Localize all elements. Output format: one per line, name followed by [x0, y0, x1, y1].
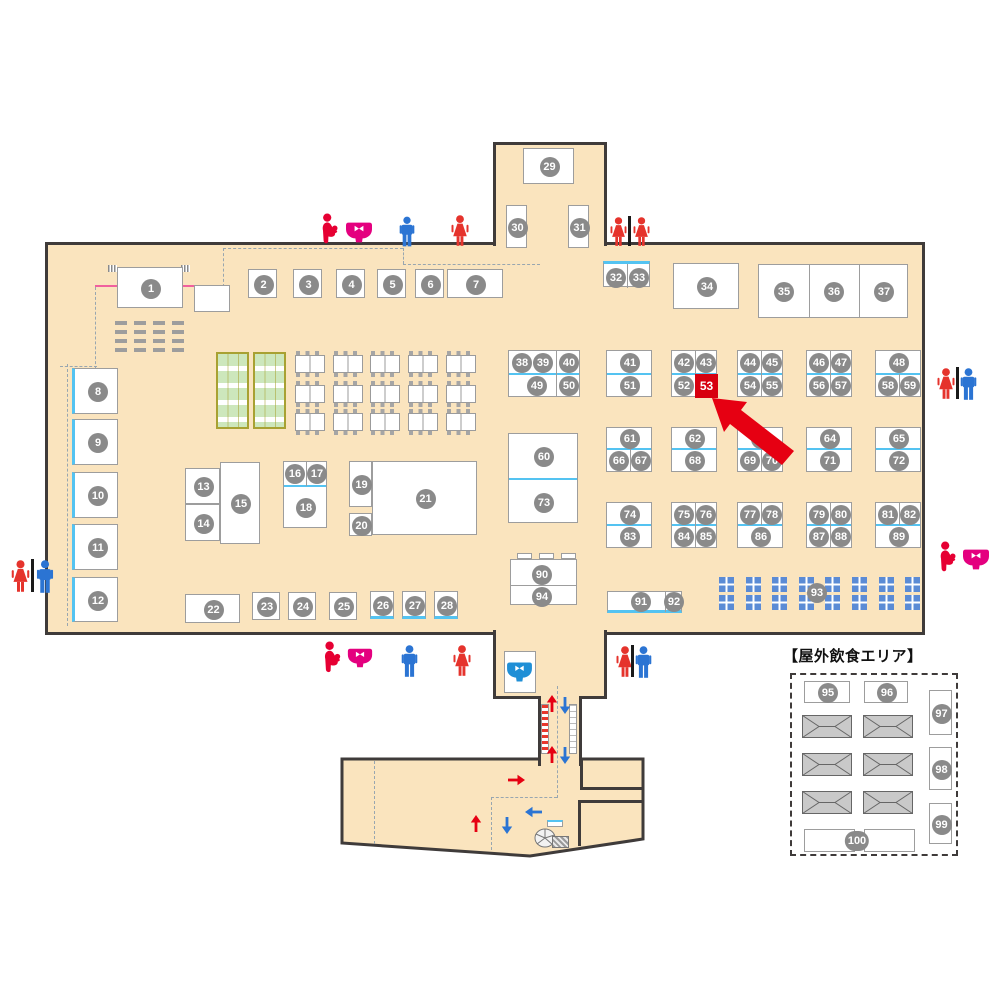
booth-number-20: 20: [352, 516, 372, 536]
booth-23[interactable]: 23: [252, 592, 280, 620]
booth-number-90: 90: [532, 565, 552, 585]
men-toilet-icon: [36, 560, 54, 593]
green-table-block: [216, 352, 249, 429]
nursing-mother-icon: [320, 213, 342, 249]
blue-table-tile: [905, 577, 920, 592]
vent-hatch: [108, 265, 117, 272]
blue-table-tile: [719, 577, 734, 592]
booth-number-74: 74: [620, 505, 640, 525]
divider-line: [627, 264, 628, 288]
diaper-icon-pink: [346, 647, 374, 669]
seat-dash: [172, 321, 184, 325]
booth-81-82-89[interactable]: 818289: [875, 502, 921, 548]
booth-number-65: 65: [889, 429, 909, 449]
booth-number-57: 57: [831, 376, 851, 396]
booth-number-36: 36: [824, 282, 844, 302]
divider-line: [556, 351, 557, 396]
booth-8[interactable]: 8: [72, 368, 118, 414]
wall-segment: [580, 759, 583, 790]
men-toilet-icon: [401, 645, 418, 677]
booth-number-34: 34: [697, 277, 717, 297]
booth-number-11: 11: [88, 538, 108, 558]
divider-line: [607, 373, 651, 375]
wall-segment: [578, 800, 643, 803]
booth-24[interactable]: 24: [288, 592, 316, 620]
booth-30[interactable]: 30: [506, 205, 527, 248]
dining-table-group: [408, 355, 438, 373]
seat-dash: [115, 348, 127, 352]
booth-5[interactable]: 5: [377, 269, 406, 298]
nursing-mother-icon: [322, 641, 345, 678]
booth-number-31: 31: [570, 218, 590, 238]
seat-dash: [172, 348, 184, 352]
highlight-arrow: [700, 390, 810, 480]
booth-number-85: 85: [696, 527, 716, 547]
diaper-icon-pink: [961, 548, 991, 571]
booth-75-76-84-85[interactable]: 75768485: [671, 502, 717, 548]
blue-table-tile: [746, 595, 761, 610]
divider-line: [509, 478, 577, 480]
women-toilet-icon: [450, 215, 470, 247]
booth-number-67: 67: [631, 451, 651, 471]
booth-number-37: 37: [874, 282, 894, 302]
booth-91-92[interactable]: 9192: [607, 591, 682, 613]
booth-60-73[interactable]: 6073: [508, 433, 578, 523]
outdoor-booth-100-right[interactable]: [864, 829, 915, 852]
booth-number-46: 46: [809, 353, 829, 373]
booth-number-8: 8: [88, 382, 108, 402]
booth-number-12: 12: [88, 591, 108, 611]
booth-65-72[interactable]: 6572: [875, 427, 921, 472]
booth-64-71[interactable]: 6471: [806, 427, 852, 472]
booth-number-94: 94: [532, 587, 552, 607]
booth-number-64: 64: [820, 429, 840, 449]
blue-table-tile: [905, 595, 920, 610]
booth-6[interactable]: 6: [415, 269, 444, 298]
dining-table-group: [446, 413, 476, 431]
tent: [802, 791, 852, 814]
booth-79-80-87-88[interactable]: 79808788: [806, 502, 852, 548]
booth-number-21: 21: [416, 489, 436, 509]
seat-dash: [115, 321, 127, 325]
booth-48-58-59[interactable]: 485859: [875, 350, 921, 397]
booth-number-51: 51: [620, 376, 640, 396]
booth-16-17-18[interactable]: 161718: [283, 461, 327, 528]
booth-number-82: 82: [900, 505, 920, 525]
booth-number-43: 43: [696, 353, 716, 373]
hatched-area: [552, 836, 569, 848]
nursing-mother-icon: [938, 541, 960, 577]
booth-number-35: 35: [774, 282, 794, 302]
divider-bar: [31, 559, 34, 592]
booth-number-89: 89: [889, 527, 909, 547]
seat-dash: [172, 339, 184, 343]
vent-tab: [561, 553, 576, 559]
seat-dash: [153, 330, 165, 334]
booth-number-59: 59: [900, 376, 920, 396]
booth-4[interactable]: 4: [336, 269, 365, 298]
booth-number-22: 22: [204, 600, 224, 620]
booth-number-56: 56: [809, 376, 829, 396]
booth-1[interactable]: 1: [117, 267, 183, 308]
partition-dashed: [403, 248, 404, 264]
area-number-100: 100: [845, 831, 869, 851]
booth-number-16: 16: [285, 464, 305, 484]
booth-61-66-67[interactable]: 616667: [606, 427, 652, 472]
booth-number-14: 14: [194, 514, 214, 534]
booth-20[interactable]: 20: [349, 513, 372, 536]
vent-tab: [539, 553, 554, 559]
up-arrow: [546, 695, 558, 713]
booth-9[interactable]: 9: [72, 419, 118, 465]
booth-number-38: 38: [512, 353, 532, 373]
booth-number-9: 9: [88, 433, 108, 453]
booth-number-80: 80: [831, 505, 851, 525]
booth-number-50: 50: [559, 376, 579, 396]
blue-table-tile: [746, 577, 761, 592]
booth-number-23: 23: [257, 597, 277, 617]
wall-segment: [493, 696, 541, 699]
blue-table-tile: [772, 595, 787, 610]
booth-number-45: 45: [762, 353, 782, 373]
down-arrow: [501, 816, 513, 834]
booth-number-52: 52: [674, 376, 694, 396]
booth-number-92: 92: [664, 592, 684, 612]
women-toilet-icon: [452, 645, 472, 677]
counter-box: [547, 820, 563, 827]
booth-number-18: 18: [296, 498, 316, 518]
booth-number-13: 13: [194, 477, 214, 497]
booth-28[interactable]: 28: [434, 591, 458, 619]
seat-dash: [115, 330, 127, 334]
booth-number-48: 48: [889, 353, 909, 373]
route-dashed: [491, 797, 492, 850]
booth-number-96: 96: [877, 683, 897, 703]
diaper-icon-blue: [505, 661, 534, 683]
dining-table-group: [408, 413, 438, 431]
dining-table-group: [370, 413, 400, 431]
tent: [802, 715, 852, 738]
partition-dashed: [403, 264, 540, 265]
booth-number-77: 77: [740, 505, 760, 525]
women-toilet-icon: [936, 368, 956, 400]
booth-22[interactable]: 22: [185, 594, 240, 623]
women-toilet-icon: [632, 217, 651, 247]
partition-dashed: [223, 248, 403, 249]
tent: [802, 753, 852, 776]
booth-number-32: 32: [606, 268, 626, 288]
booth-number-76: 76: [696, 505, 716, 525]
women-toilet-icon: [609, 217, 628, 247]
booth-74-83[interactable]: 7483: [606, 502, 652, 548]
dining-table-group: [295, 385, 325, 403]
booth-number-95: 95: [818, 683, 838, 703]
men-toilet-icon: [635, 646, 652, 678]
tent: [863, 753, 913, 776]
booth-number-39: 39: [533, 353, 553, 373]
booth-number-24: 24: [293, 597, 313, 617]
tent: [863, 715, 913, 738]
booth-98[interactable]: 98: [929, 747, 952, 790]
dining-table-group: [370, 355, 400, 373]
booth-25[interactable]: 25: [329, 592, 357, 620]
booth-number-40: 40: [559, 353, 579, 373]
booth-number-4: 4: [342, 275, 362, 295]
booth-38-39-40-49-50[interactable]: 3839404950: [508, 350, 580, 397]
booth-29[interactable]: 29: [523, 148, 574, 184]
booth-number-15: 15: [231, 494, 251, 514]
booth-46-47-56-57[interactable]: 46475657: [806, 350, 852, 397]
route-dashed: [491, 797, 557, 798]
booth-13[interactable]: 13: [185, 468, 220, 504]
booth-number-75: 75: [674, 505, 694, 525]
booth-12[interactable]: 12: [72, 577, 118, 622]
seat-dash: [153, 339, 165, 343]
divider-line: [738, 373, 782, 375]
divider-line: [807, 373, 851, 375]
booth-number-3: 3: [299, 275, 319, 295]
blue-table-tile: [879, 595, 894, 610]
blue-table-tile: [772, 577, 787, 592]
booth-number-58: 58: [878, 376, 898, 396]
booth-number-19: 19: [352, 475, 372, 495]
booth-27[interactable]: 27: [402, 591, 426, 619]
booth-number-44: 44: [740, 353, 760, 373]
booth-number-41: 41: [620, 353, 640, 373]
booth-26[interactable]: 26: [370, 591, 394, 619]
booth-number-26: 26: [373, 596, 393, 616]
divider-bar: [956, 367, 959, 399]
booth-21[interactable]: 21: [372, 461, 477, 535]
booth-number-81: 81: [878, 505, 898, 525]
booth-number-78: 78: [762, 505, 782, 525]
route-dashed: [374, 761, 375, 844]
booth-number-49: 49: [527, 376, 547, 396]
booth-99[interactable]: 99: [929, 803, 952, 844]
vent-tab: [517, 553, 532, 559]
booth-number-42: 42: [674, 353, 694, 373]
wall-segment: [580, 787, 643, 790]
divider-line: [509, 373, 579, 375]
booth-number-97: 97: [932, 704, 952, 724]
booth-77-78-86[interactable]: 777886: [737, 502, 783, 548]
booth-number-33: 33: [629, 268, 649, 288]
down-arrow: [559, 746, 571, 764]
booth-number-73: 73: [534, 493, 554, 513]
booth-3[interactable]: 3: [293, 269, 322, 298]
area-number-93: 93: [807, 583, 827, 603]
booth-number-72: 72: [889, 451, 909, 471]
booth-number-66: 66: [609, 451, 629, 471]
booth-10[interactable]: 10: [72, 472, 118, 518]
blue-table-tile: [825, 595, 840, 610]
booth-97[interactable]: 97: [929, 690, 952, 735]
booth-number-6: 6: [421, 275, 441, 295]
booth-number-84: 84: [674, 527, 694, 547]
seat-dash: [153, 348, 165, 352]
dining-table-group: [333, 355, 363, 373]
right-arrow: [510, 771, 522, 789]
partition-dashed: [223, 248, 224, 287]
blue-table-tile: [852, 595, 867, 610]
booth-number-98: 98: [932, 760, 952, 780]
dining-table-group: [295, 413, 325, 431]
booth-number-47: 47: [831, 353, 851, 373]
up-arrow: [546, 746, 558, 764]
divider-line: [511, 585, 576, 586]
seat-dash: [134, 348, 146, 352]
dining-table-group: [295, 355, 325, 373]
booth-number-10: 10: [88, 486, 108, 506]
booth-number-87: 87: [809, 527, 829, 547]
booth-number-60: 60: [534, 447, 554, 467]
booth-2[interactable]: 2: [248, 269, 277, 298]
dining-table-group: [333, 385, 363, 403]
booth-number-25: 25: [334, 597, 354, 617]
booth-number-7: 7: [466, 275, 486, 295]
outdoor-area-title: 【屋外飲食エリア】: [783, 645, 923, 666]
blue-table-tile: [825, 577, 840, 592]
booth-31[interactable]: 31: [568, 205, 589, 248]
diaper-icon-pink: [344, 221, 374, 244]
left-arrow: [528, 803, 540, 821]
divider-bar: [631, 645, 634, 677]
seat-dash: [134, 339, 146, 343]
wall-segment: [578, 800, 581, 846]
partition-dashed: [60, 366, 97, 367]
booth-7[interactable]: 7: [447, 269, 503, 298]
booth-number-17: 17: [307, 464, 327, 484]
booth-number-2: 2: [254, 275, 274, 295]
booth-number-1: 1: [141, 279, 161, 299]
booth-number-29: 29: [540, 157, 560, 177]
seat-dash: [134, 321, 146, 325]
divider-line: [876, 373, 920, 375]
booth-number-99: 99: [932, 815, 952, 835]
booth-number-30: 30: [508, 218, 528, 238]
seat-dash: [172, 330, 184, 334]
down-arrow: [559, 696, 571, 714]
booth-number-83: 83: [620, 527, 640, 547]
booth-32-33[interactable]: 3233: [603, 261, 650, 287]
booth-41-51[interactable]: 4151: [606, 350, 652, 397]
dining-table-group: [408, 385, 438, 403]
booth-number-28: 28: [437, 596, 457, 616]
booth-34[interactable]: 34: [673, 263, 739, 309]
divider-line: [809, 265, 810, 317]
booth-15[interactable]: 15: [220, 462, 260, 544]
dining-table-group: [333, 413, 363, 431]
men-toilet-icon: [960, 368, 977, 400]
men-toilet-icon: [399, 216, 415, 247]
blue-table-tile: [719, 595, 734, 610]
dining-table-group: [370, 385, 400, 403]
booth-number-5: 5: [383, 275, 403, 295]
tent: [863, 791, 913, 814]
booth-19[interactable]: 19: [349, 461, 372, 507]
blue-table-tile: [852, 577, 867, 592]
divider-line: [859, 265, 860, 317]
partition-dashed: [67, 364, 68, 626]
divider-line: [284, 485, 326, 487]
seat-dash: [134, 330, 146, 334]
blue-table-tile: [879, 577, 894, 592]
booth-11[interactable]: 11: [72, 524, 118, 570]
divider-bar: [628, 216, 631, 246]
service-line: [95, 285, 118, 287]
green-table-block: [253, 352, 286, 429]
south-lobby: [340, 756, 648, 860]
booth-number-79: 79: [809, 505, 829, 525]
seat-dash: [115, 339, 127, 343]
dining-table-group: [446, 385, 476, 403]
booth-number-91: 91: [631, 592, 651, 612]
women-toilet-icon: [10, 560, 31, 593]
booth-14[interactable]: 14: [185, 504, 220, 541]
booth-number-61: 61: [620, 429, 640, 449]
booth-95[interactable]: 95: [804, 681, 850, 703]
seat-dash: [153, 321, 165, 325]
small-room[interactable]: [194, 285, 230, 312]
booth-number-86: 86: [751, 527, 771, 547]
up-arrow: [470, 815, 482, 833]
floor-map: 【屋外飲食エリア】 123456789101112131415161718192…: [0, 0, 1000, 1000]
booth-number-71: 71: [820, 451, 840, 471]
dining-table-group: [446, 355, 476, 373]
booth-90-94[interactable]: 9094: [510, 559, 577, 605]
wall-segment: [578, 696, 607, 699]
booth-number-88: 88: [831, 527, 851, 547]
booth-35-36-37[interactable]: 353637: [758, 264, 908, 318]
booth-number-27: 27: [405, 596, 425, 616]
booth-96[interactable]: 96: [864, 681, 908, 703]
